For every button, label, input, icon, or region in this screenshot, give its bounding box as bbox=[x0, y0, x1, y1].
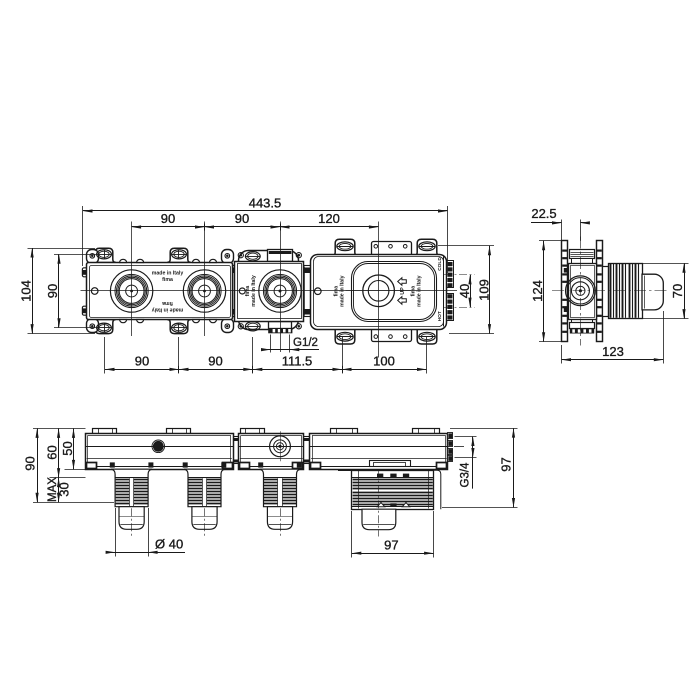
svg-text:made in Italy: made in Italy bbox=[417, 275, 423, 307]
svg-text:90: 90 bbox=[161, 211, 175, 226]
svg-text:90: 90 bbox=[208, 354, 222, 369]
svg-text:made in Italy: made in Italy bbox=[340, 275, 346, 307]
svg-text:fima: fima bbox=[162, 300, 173, 306]
svg-text:30: 30 bbox=[56, 482, 71, 496]
svg-text:90: 90 bbox=[22, 456, 37, 470]
svg-text:50: 50 bbox=[60, 441, 75, 455]
svg-text:90: 90 bbox=[135, 354, 149, 369]
svg-text:109: 109 bbox=[476, 279, 491, 301]
svg-text:100: 100 bbox=[373, 354, 395, 369]
svg-text:made in Italy: made in Italy bbox=[152, 307, 184, 313]
svg-text:111.5: 111.5 bbox=[282, 354, 313, 369]
svg-text:made in Italy: made in Italy bbox=[152, 271, 184, 277]
svg-text:70: 70 bbox=[670, 284, 685, 298]
svg-text:HOT: HOT bbox=[437, 311, 443, 321]
svg-text:90: 90 bbox=[45, 284, 60, 298]
svg-text:G1/2: G1/2 bbox=[293, 337, 318, 349]
svg-text:443.5: 443.5 bbox=[249, 196, 282, 211]
svg-text:123: 123 bbox=[602, 344, 624, 359]
svg-text:97: 97 bbox=[384, 538, 398, 553]
svg-text:124: 124 bbox=[530, 280, 545, 302]
svg-text:97: 97 bbox=[498, 457, 513, 471]
svg-text:90: 90 bbox=[235, 211, 249, 226]
svg-text:G3/4: G3/4 bbox=[460, 462, 472, 488]
svg-text:120: 120 bbox=[318, 211, 340, 226]
svg-text:made in Italy: made in Italy bbox=[251, 275, 257, 307]
svg-text:60: 60 bbox=[44, 445, 59, 459]
svg-text:COLD: COLD bbox=[437, 257, 443, 271]
svg-text:22.5: 22.5 bbox=[531, 206, 556, 221]
svg-text:Ø 40: Ø 40 bbox=[155, 537, 183, 552]
svg-text:40: 40 bbox=[457, 284, 472, 298]
svg-text:104: 104 bbox=[18, 280, 33, 302]
svg-text:fima: fima bbox=[162, 277, 173, 283]
